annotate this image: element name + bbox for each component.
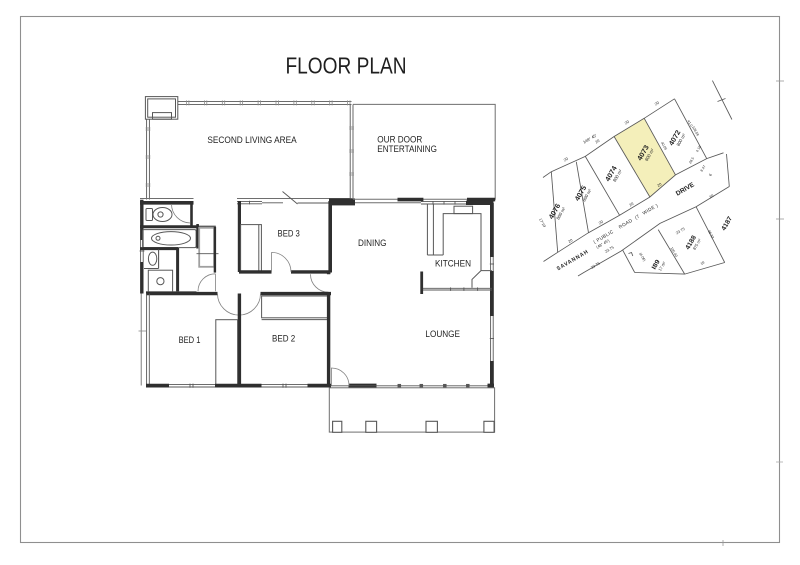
svg-text:BED 2: BED 2 [272, 334, 295, 344]
svg-text:BED 1: BED 1 [179, 335, 201, 345]
svg-text:BED 3: BED 3 [278, 229, 300, 239]
svg-text:KITCHEN: KITCHEN [435, 258, 471, 268]
svg-text:SECOND LIVING AREA: SECOND LIVING AREA [207, 135, 297, 145]
svg-text:OUR DOOR: OUR DOOR [377, 134, 422, 144]
svg-text:DINING: DINING [358, 238, 387, 248]
svg-text:LOUNGE: LOUNGE [425, 329, 460, 339]
svg-text:ENTERTAINING: ENTERTAINING [377, 144, 437, 154]
svg-text:FLOOR PLAN: FLOOR PLAN [286, 52, 407, 78]
